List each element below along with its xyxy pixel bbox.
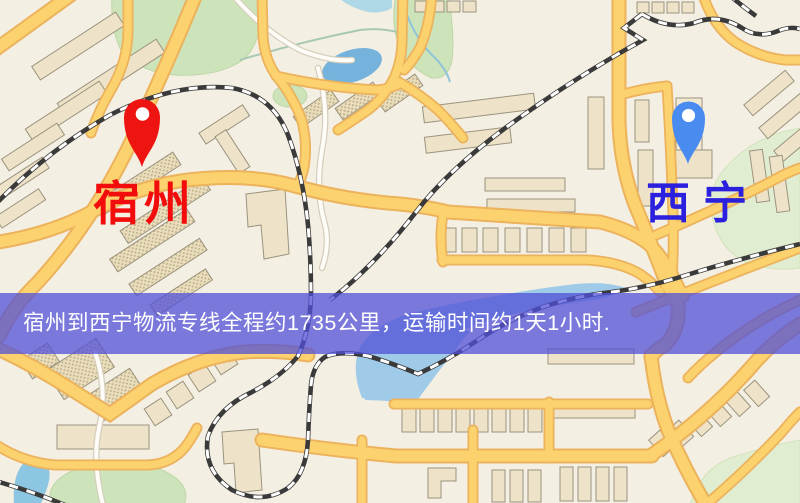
destination-pin-hole [682,109,695,122]
origin-city-label: 宿州 [93,179,195,231]
route-info-text: 宿州到西宁物流专线全程约1735公里，运输时间约1天1小时. [23,311,610,335]
origin-pin-hole [136,107,150,121]
map-image: 宿州 西宁 宿州到西宁物流专线全程约1735公里，运输时间约1天1小时. [0,0,800,503]
route-info-banner: 宿州到西宁物流专线全程约1735公里，运输时间约1天1小时. [0,293,800,354]
map-canvas: 宿州 西宁 [0,0,800,503]
destination-city-label: 西宁 [646,179,760,228]
